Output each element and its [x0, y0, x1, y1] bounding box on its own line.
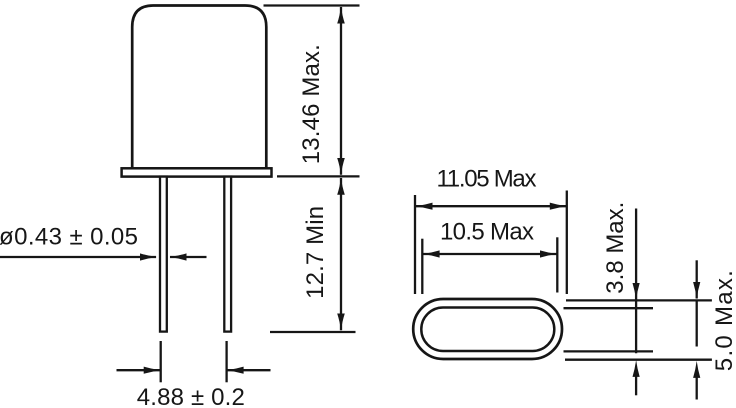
svg-text:10.5 Max: 10.5 Max — [440, 219, 534, 246]
svg-text:5.0 Max.: 5.0 Max. — [711, 270, 736, 371]
svg-text:3.8 Max.: 3.8 Max. — [602, 202, 629, 294]
svg-text:11.05 Max: 11.05 Max — [437, 166, 537, 193]
svg-text:ø0.43 ± 0.05: ø0.43 ± 0.05 — [0, 224, 138, 251]
svg-text:12.7 Min: 12.7 Min — [302, 206, 329, 299]
svg-text:4.88 ± 0.2: 4.88 ± 0.2 — [137, 384, 245, 408]
svg-text:13.46 Max.: 13.46 Max. — [298, 44, 325, 164]
